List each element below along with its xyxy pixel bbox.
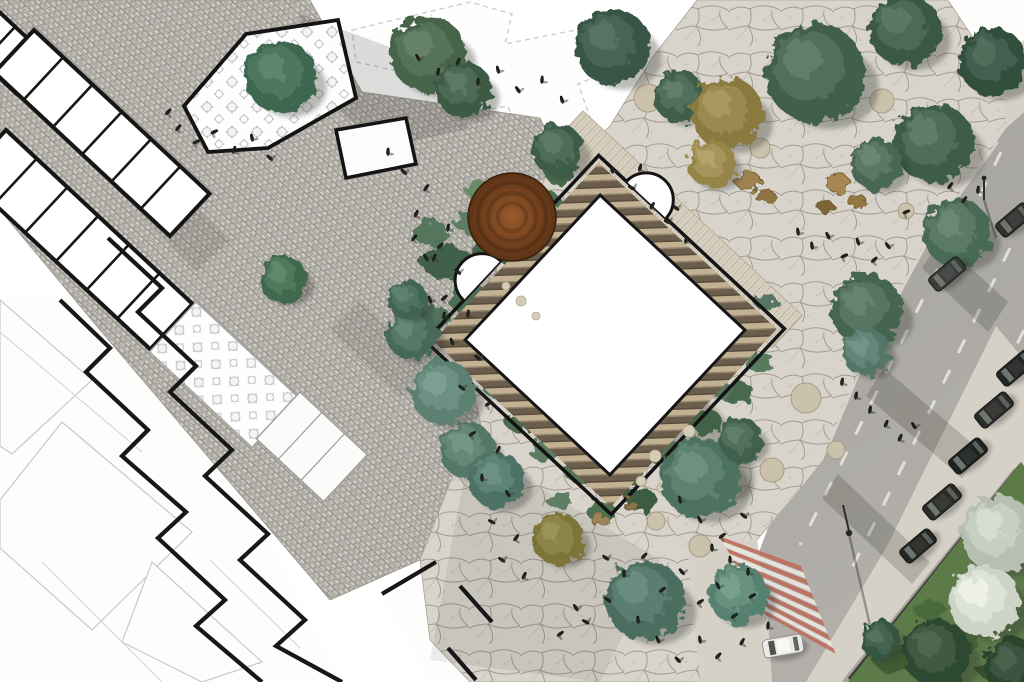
stepping-stone: [516, 296, 526, 306]
site-plan-stage: [0, 0, 1024, 682]
tree-canopy-highlight: [844, 286, 871, 313]
rust-circular-feature: [468, 173, 556, 261]
tree-canopy-highlight: [936, 211, 962, 237]
tree-canopy-highlight: [916, 631, 942, 657]
tree-canopy-highlight: [446, 72, 467, 93]
landscape-rock: [591, 514, 609, 526]
lamp-head: [846, 530, 852, 536]
tree-canopy-highlight: [784, 40, 822, 78]
tree-canopy-highlight: [404, 29, 433, 58]
landscape-rock: [848, 194, 866, 208]
car-roof: [776, 638, 791, 653]
tree-canopy-highlight: [994, 648, 1015, 669]
landscape-rock: [826, 174, 850, 192]
tree-canopy-highlight: [620, 574, 650, 604]
tree-canopy-highlight: [909, 117, 939, 147]
tree-canopy-highlight: [268, 263, 286, 281]
stepping-stone: [502, 282, 510, 290]
tree-canopy-highlight: [860, 147, 880, 167]
planting-bed: [414, 220, 448, 246]
tree-canopy-highlight: [975, 509, 1004, 538]
stepping-stone: [636, 476, 646, 486]
shrub: [914, 600, 946, 620]
stepping-stone: [532, 312, 540, 320]
tree-canopy-highlight: [395, 287, 410, 302]
stone-seat: [791, 383, 821, 413]
tree-canopy-highlight: [423, 371, 447, 395]
site-plan-canvas: [0, 0, 1024, 682]
lamp-head: [982, 176, 987, 181]
tree-canopy-highlight: [675, 452, 705, 482]
tree-canopy-highlight: [449, 432, 470, 453]
landscape-rock: [756, 190, 776, 204]
stone-seat: [827, 441, 845, 459]
tree-canopy-highlight: [258, 53, 285, 80]
tree-canopy-highlight: [727, 425, 744, 442]
stone-seat: [689, 535, 711, 557]
stone-seat: [647, 512, 665, 530]
pedestrian-head: [623, 570, 626, 573]
planting-bed: [546, 491, 574, 509]
tree-canopy-highlight: [851, 336, 869, 354]
tree-canopy-highlight: [697, 148, 715, 166]
pedestrian-head: [729, 556, 732, 559]
tree-canopy-highlight: [664, 80, 684, 100]
stepping-stone: [649, 450, 661, 462]
stone-seat: [760, 458, 784, 482]
tree-canopy-highlight: [972, 40, 998, 66]
landscape-rock: [623, 500, 637, 510]
tree-canopy-highlight: [867, 627, 882, 642]
tree-canopy-highlight: [542, 522, 562, 542]
tree-canopy-highlight: [589, 22, 618, 51]
tree-canopy-highlight: [704, 89, 731, 116]
landscape-rock: [818, 201, 834, 213]
tree-canopy-highlight: [961, 577, 988, 604]
tree-canopy-highlight: [882, 6, 909, 33]
stepping-stone: [683, 425, 695, 437]
tree-canopy-highlight: [542, 133, 562, 153]
